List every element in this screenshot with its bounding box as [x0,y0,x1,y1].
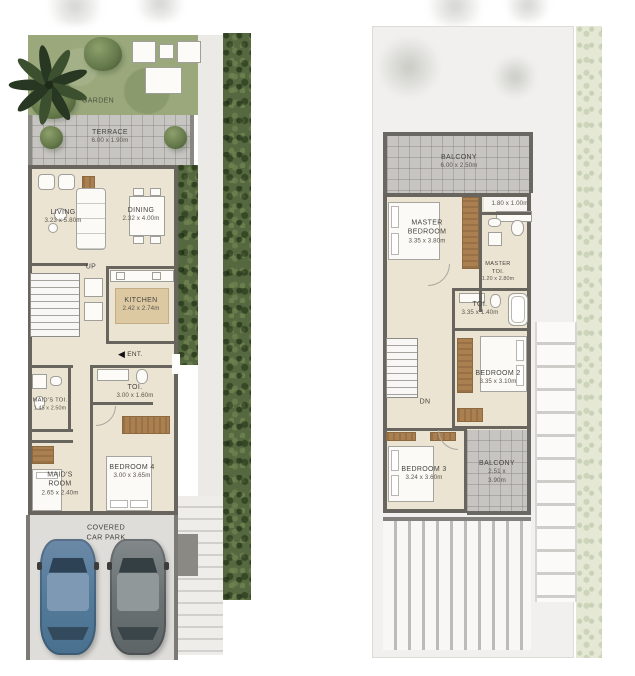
gate-post [178,534,198,576]
car-roof [47,573,88,611]
terrace-plant [164,126,187,149]
ground-floor-plan: GARDEN [12,26,254,662]
wall [28,429,73,432]
washing-machine [32,374,47,389]
bedroom3-text: BEDROOM 3 [401,466,446,473]
shower [488,232,502,246]
maids-toi-dims: 1.45 x 2.50m [30,405,70,412]
rear-balcony-dims: 2.51 x 3.90m [479,468,515,485]
tree-shadow [492,56,538,98]
closet [84,302,103,321]
wall [28,263,88,266]
bedroom2-dims: 3.35 x 3.10m [475,379,520,387]
wall [452,288,455,431]
living-label: LIVING 3.23 x 5.80m [45,208,82,226]
car-mirror [164,562,169,570]
wardrobe [32,446,54,464]
washbasin [38,174,55,190]
car-park: COVERED CAR PARK [26,515,178,660]
living-label-text: LIVING [50,209,75,216]
garden-lounger [145,67,182,94]
wall [28,365,73,368]
first-toi-text: TOI. [473,301,488,308]
garden-area: GARDEN [28,35,198,115]
dining-dims: 2.32 x 4.00m [123,216,160,224]
toilet-wc [511,220,524,236]
stairs-down [386,338,418,398]
wall [90,365,178,368]
stove [116,272,125,280]
kitchen-dims: 2.42 x 2.74m [123,306,160,314]
stairs-down-text: DN [420,398,431,405]
toilet-wc [136,369,148,384]
wardrobe [122,416,170,434]
maids-toi-text: MAID'S TOI. [33,398,68,404]
maids-room-label: MAID'S ROOM 2.65 x 2.40m [40,470,80,497]
wall [479,212,531,215]
basin [488,218,501,227]
terrace-label-text: TERRACE [92,129,128,136]
wall [90,365,93,515]
front-balcony: BALCONY 6.00 x 2.50m [383,132,533,193]
stairs-up-label: UP [86,262,96,271]
terrace-dims: 6.00 x 1.90m [92,138,129,146]
hedge-strip [223,33,251,600]
toi-label: TOI. 3.00 x 1.60m [117,383,154,401]
kitchen-label-text: KITCHEN [124,297,157,304]
palm-tree-icon [6,43,92,127]
car-rear-window [117,627,158,640]
sink [152,272,161,280]
master-toi-dims: 1.20 x 2.80m [480,276,516,283]
front-balcony-dims: 6.00 x 2.50m [441,163,478,171]
wall [106,266,178,269]
floorplan-canvas: GARDEN [0,0,635,676]
car-blue [40,539,96,655]
dining-chair [150,188,161,196]
bathtub [508,293,528,326]
master-toi-text: MASTER TOI. [485,261,510,275]
closet [84,278,103,297]
bedroom2-text: BEDROOM 2 [475,370,520,377]
garden-label-text: GARDEN [82,97,114,104]
maids-toi-label: MAID'S TOI. 1.45 x 2.50m [30,398,70,413]
dining-chair [133,188,144,196]
terrace-plant [40,126,63,149]
stairs-down-label: DN [420,397,431,406]
car-mirror [94,562,99,570]
maids-room-dims: 2.65 x 2.40m [40,489,80,497]
garden-label: GARDEN [82,96,114,105]
washbasin [58,174,75,190]
bedroom2-label: BEDROOM 2 3.35 x 3.10m [475,369,520,387]
tree-shadow [376,36,442,98]
living-dims: 3.23 x 5.80m [45,218,82,226]
entrance-label-text: ENT. [127,351,142,358]
front-balcony-text: BALCONY [441,154,477,161]
rear-balcony-label: BALCONY 2.51 x 3.90m [479,459,515,485]
wardrobe [462,197,479,269]
entrance-door-gap [172,354,180,374]
wall [464,428,467,513]
stairs-up-text: UP [86,263,96,270]
toi-label-text: TOI. [128,384,143,391]
first-floor-plan: BALCONY 6.00 x 2.50m 1.80 x 1.00m M [372,26,608,662]
garden-chair [177,41,201,63]
wardrobe [386,432,416,441]
car-mirror [37,562,42,570]
tree-shadow [420,0,490,26]
bedroom4-text: BEDROOM 4 [109,464,154,471]
car-rear-window [47,627,88,640]
rear-balcony-text: BALCONY [479,460,515,467]
stairs-up [30,273,80,337]
rear-balcony: BALCONY 2.51 x 3.90m [467,430,531,515]
tree-shadow [130,0,190,22]
window-dims-text: 1.80 x 1.00m [492,200,529,208]
toi-dims: 3.00 x 1.60m [117,393,154,401]
bedroom3-dims: 3.24 x 3.60m [401,475,446,483]
car-gray [110,539,166,655]
bedroom3-label: BEDROOM 3 3.24 x 3.60m [401,465,446,483]
dining-label: DINING 2.32 x 4.00m [123,206,160,224]
window-dims-label: 1.80 x 1.00m [492,200,529,208]
tree-shadow [500,0,555,22]
front-balcony-label: BALCONY 6.00 x 2.50m [441,153,478,171]
wall [452,328,531,331]
pergola-slats [383,517,531,650]
bedroom4-label: BEDROOM 4 3.00 x 3.65m [109,463,154,481]
dresser [457,408,483,422]
car-windshield [46,558,90,573]
car-windshield [116,558,160,573]
car-park-text: COVERED CAR PARK [86,522,125,541]
wall [106,266,109,344]
wall [93,402,153,405]
first-toi-dims: 3.35 x 1.40m [462,310,499,318]
side-trellis [535,322,577,602]
maids-room-text: MAID'S ROOM [47,471,73,487]
vanity-counter [97,369,129,381]
car-park-label: COVERED CAR PARK [79,522,133,541]
wall [452,288,531,291]
garden-chair [132,41,156,63]
first-toi-label: TOI. 3.35 x 1.40m [462,300,499,318]
dining-chair [133,236,144,244]
green-border-strip [576,26,602,658]
basin [50,376,62,386]
wardrobe [457,338,473,393]
bedroom4-dims: 3.00 x 3.65m [109,473,154,481]
kitchen-label: KITCHEN 2.42 x 2.74m [123,296,160,314]
terrace-label: TERRACE 6.00 x 1.90m [92,128,129,146]
garden-side-table [159,44,174,59]
entrance-arrow-icon: ◀ [118,350,125,359]
entrance-marker: ◀ ENT. [118,350,143,359]
master-toi-label: MASTER TOI. 1.20 x 2.80m [480,261,516,283]
wall [106,341,178,344]
dining-label-text: DINING [128,207,155,214]
master-bedroom-label: MASTER BEDROOM 3.35 x 3.80m [403,218,451,245]
master-bedroom-text: MASTER BEDROOM [408,219,447,235]
wall [28,440,73,443]
dining-chair [150,236,161,244]
car-roof [117,573,158,611]
master-bedroom-dims: 3.35 x 3.80m [403,237,451,245]
car-mirror [107,562,112,570]
tree-shadow [40,0,110,26]
inner-hedge-strip [178,165,198,365]
